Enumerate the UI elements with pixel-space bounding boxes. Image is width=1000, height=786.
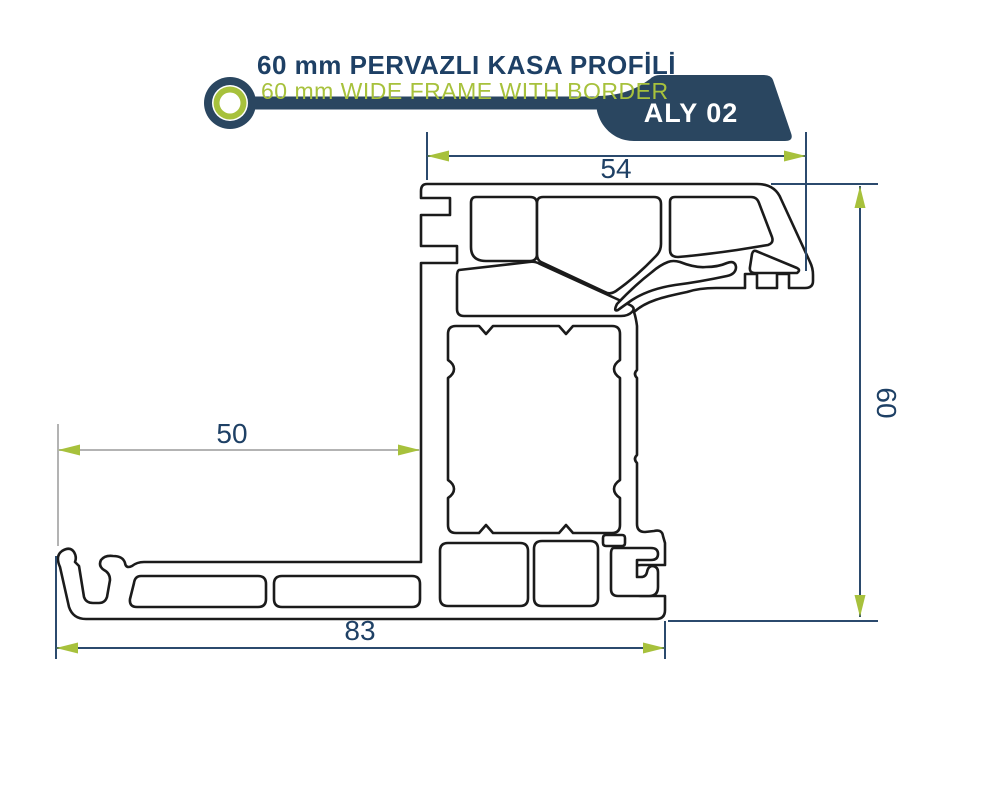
arrow-left-icon [58,445,80,456]
arrow-left-icon [427,151,449,162]
small-notch-chamber [603,535,625,546]
flange-chamber-1 [130,576,266,607]
head-chamber-3 [670,197,773,257]
dimension-value-top: 54 [600,153,631,184]
product-code-badge: ALY 02 [644,98,739,128]
logo-center [220,93,241,114]
main-chamber [448,326,620,533]
page-title: 60 mm PERVAZLI KASA PROFİLİ [257,50,676,80]
base-square-chamber-1 [440,543,528,606]
arrow-right-icon [784,151,806,162]
arrow-right-icon [643,643,665,654]
head-chamber-1 [471,197,537,261]
technical-drawing-page: 60 mm PERVAZLI KASA PROFİLİ 60 mm WIDE F… [0,0,1000,786]
dimension-value-bottom: 83 [344,615,375,646]
arrow-down-icon [855,595,866,617]
arrow-right-icon [398,445,420,456]
dimension-value-right: 60 [871,387,902,418]
dimension-left-50: 50 [58,418,420,546]
arrow-up-icon [855,186,866,208]
concentric-rings-logo-icon [204,77,256,129]
flange-chamber-2 [274,576,420,607]
header: 60 mm PERVAZLI KASA PROFİLİ 60 mm WIDE F… [204,50,792,141]
screw-clip-cavity [611,548,658,596]
dimension-value-left: 50 [216,418,247,449]
arrow-left-icon [56,643,78,654]
profile-cross-section [58,184,813,619]
page-subtitle: 60 mm WIDE FRAME WITH BORDER [261,78,669,104]
profile-drawing-canvas: 60 mm PERVAZLI KASA PROFİLİ 60 mm WIDE F… [0,0,1000,786]
base-square-chamber-2 [534,541,598,606]
